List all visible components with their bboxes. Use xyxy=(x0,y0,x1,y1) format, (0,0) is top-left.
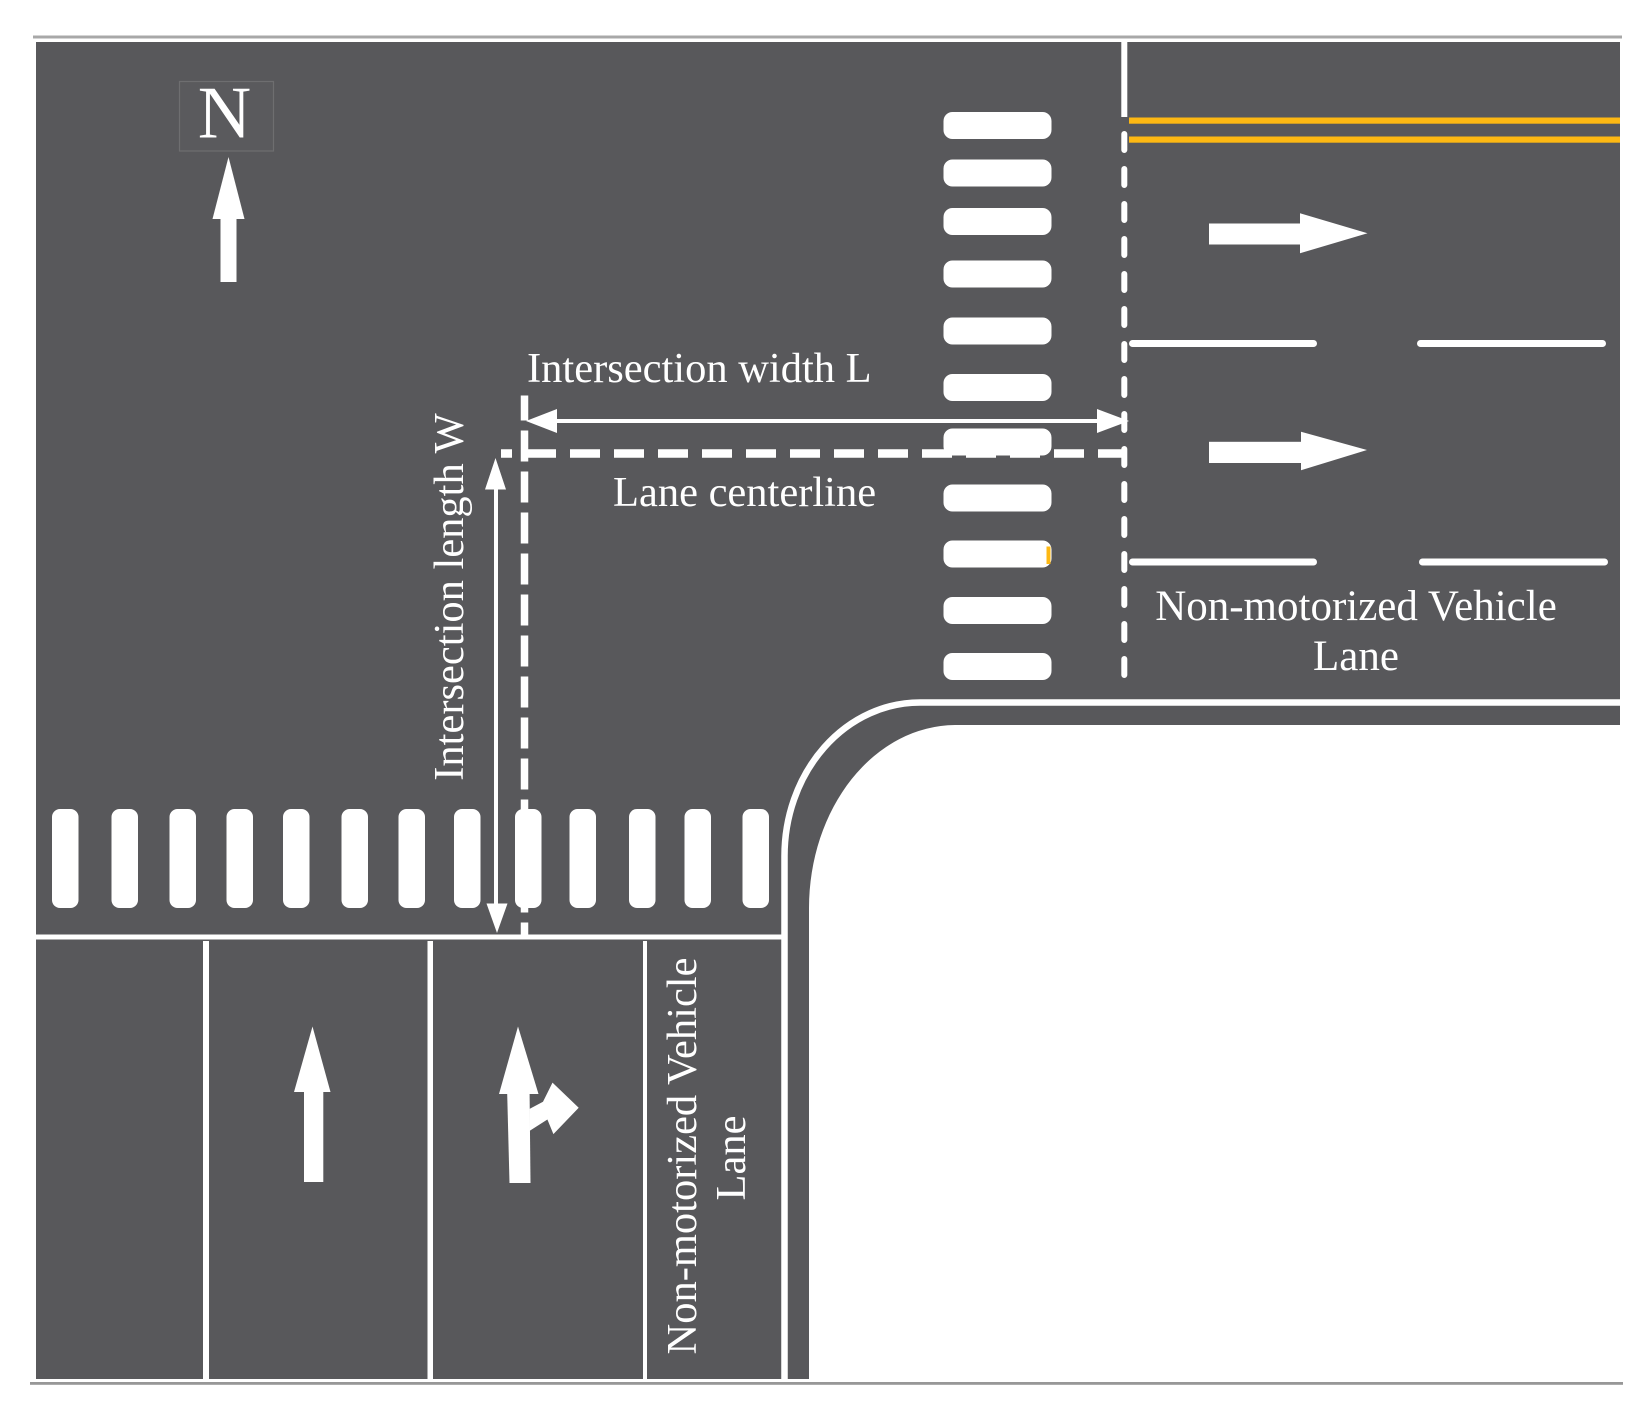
svg-text:Lane centerline: Lane centerline xyxy=(613,469,876,516)
svg-text:N: N xyxy=(198,73,251,155)
svg-text:Intersection width L: Intersection width L xyxy=(527,345,872,392)
svg-text:Non-motorized Vehicle: Non-motorized Vehicle xyxy=(1155,583,1557,630)
svg-text:Intersection length W: Intersection length W xyxy=(426,412,473,780)
svg-text:Lane: Lane xyxy=(1313,633,1399,680)
svg-text:Non-motorized Vehicle: Non-motorized Vehicle xyxy=(659,958,706,1355)
svg-text:Lane: Lane xyxy=(708,1116,755,1201)
